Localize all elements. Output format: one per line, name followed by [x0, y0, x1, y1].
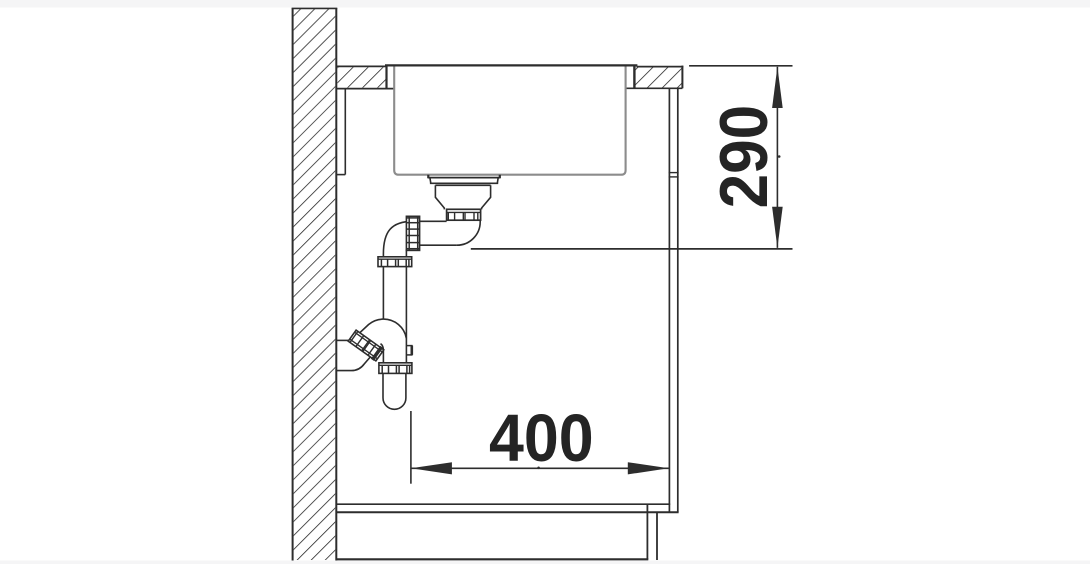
svg-text:290: 290	[705, 105, 781, 209]
svg-text:400: 400	[489, 401, 594, 475]
